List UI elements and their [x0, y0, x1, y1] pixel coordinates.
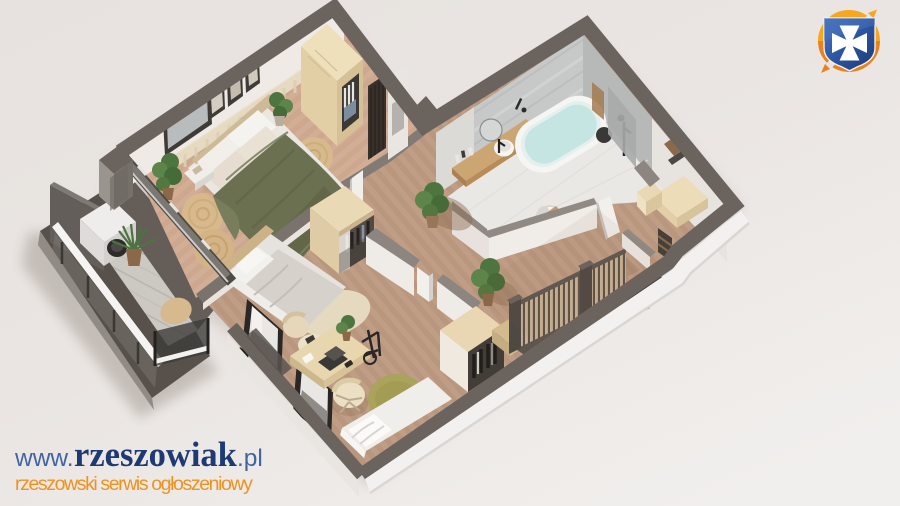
svg-text:.pl: .pl: [237, 445, 263, 472]
svg-text:www.: www.: [14, 445, 74, 472]
svg-text:rzeszowski serwis ogłoszeniowy: rzeszowski serwis ogłoszeniowy: [15, 473, 253, 495]
svg-text:rzeszowiak: rzeszowiak: [74, 436, 238, 474]
